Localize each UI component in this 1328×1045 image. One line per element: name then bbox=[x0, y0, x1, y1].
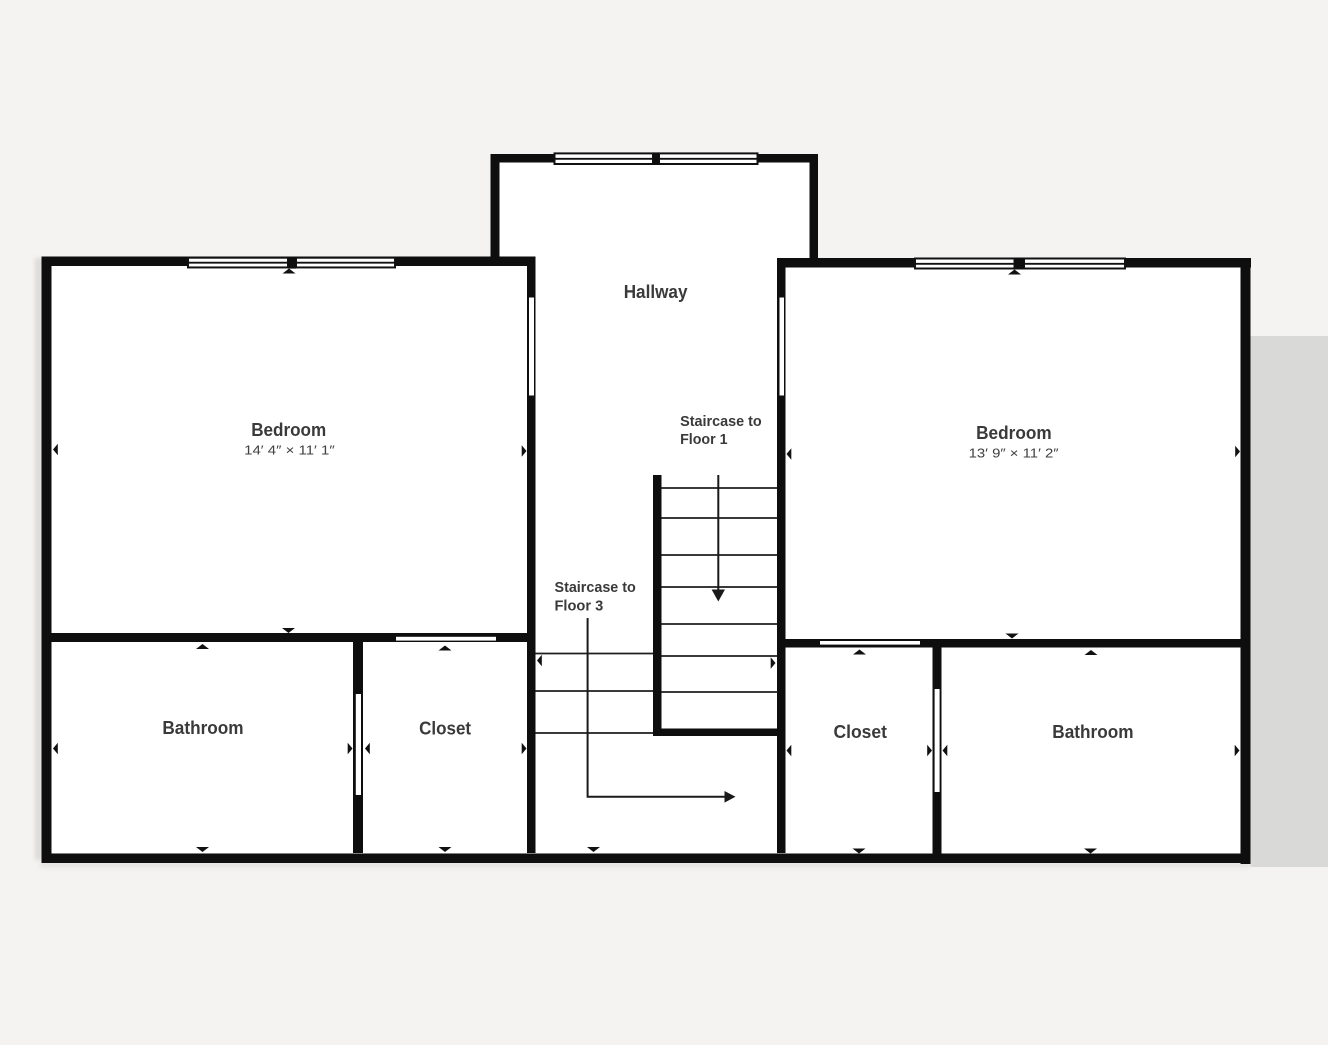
svg-text:Bathroom: Bathroom bbox=[1052, 721, 1133, 742]
svg-text:Floor 3: Floor 3 bbox=[555, 599, 604, 615]
svg-text:Hallway: Hallway bbox=[624, 281, 688, 302]
svg-text:13′ 9″ × 11′ 2″: 13′ 9″ × 11′ 2″ bbox=[969, 446, 1059, 461]
svg-text:Bathroom: Bathroom bbox=[162, 717, 243, 738]
svg-text:Closet: Closet bbox=[833, 721, 887, 742]
svg-text:Floor 1: Floor 1 bbox=[680, 432, 727, 448]
svg-text:Closet: Closet bbox=[419, 717, 471, 738]
svg-text:Staircase to: Staircase to bbox=[680, 414, 762, 430]
svg-text:Bedroom: Bedroom bbox=[251, 419, 326, 440]
svg-text:Bedroom: Bedroom bbox=[976, 422, 1052, 443]
svg-text:14′ 4″ × 11′ 1″: 14′ 4″ × 11′ 1″ bbox=[244, 442, 335, 457]
svg-text:Staircase to: Staircase to bbox=[555, 580, 636, 596]
